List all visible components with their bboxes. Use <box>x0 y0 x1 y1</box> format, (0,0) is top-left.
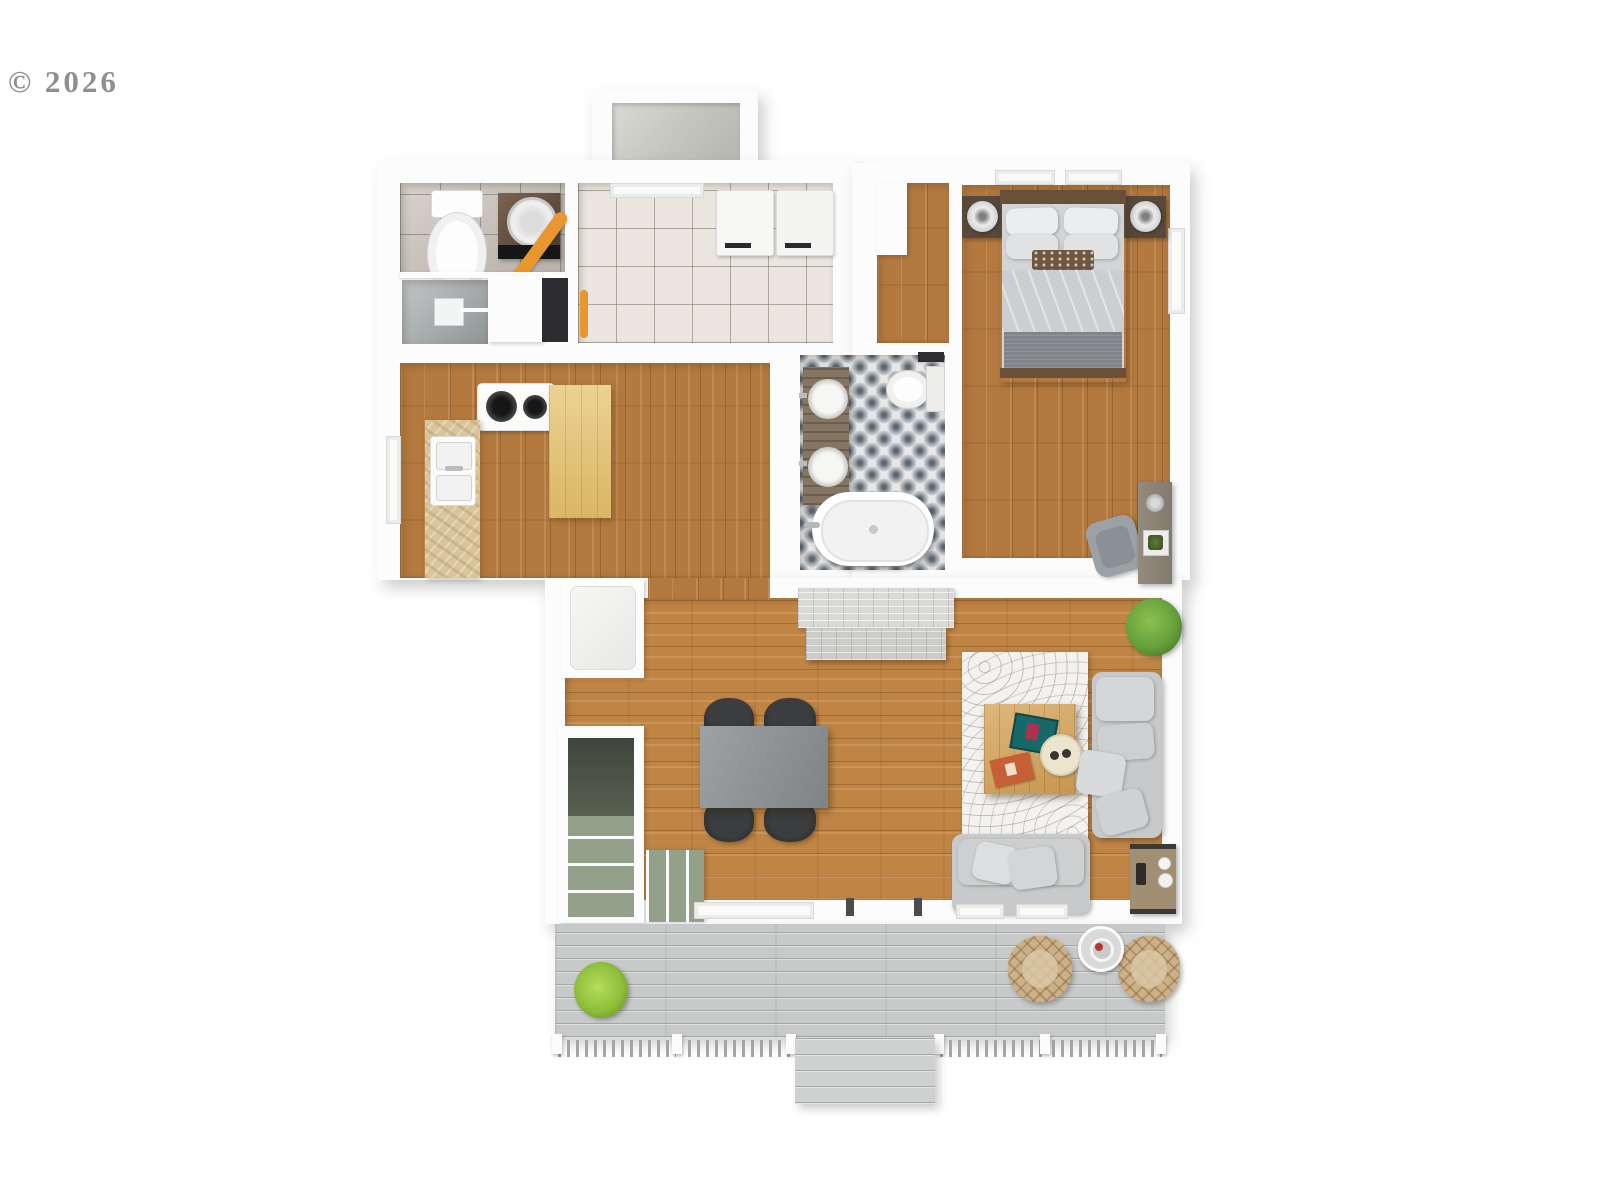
patio-table <box>1078 926 1124 972</box>
toilet <box>425 190 487 294</box>
deck-railing <box>1052 1038 1162 1057</box>
glasses <box>1050 751 1059 760</box>
bedroom-window-top-right <box>1065 170 1122 185</box>
deck-railing <box>688 1038 792 1057</box>
nightstand-left <box>962 196 1002 238</box>
deck-floor <box>555 924 1165 1038</box>
floor-plan-canvas: © 2026 <box>0 0 1600 1200</box>
plant-small <box>1148 535 1163 550</box>
faucet <box>799 393 807 398</box>
shower-arm <box>460 308 488 312</box>
desk <box>1138 482 1172 584</box>
bottle <box>1158 873 1173 888</box>
door-track-mark <box>914 898 922 916</box>
door-track-mark <box>846 898 854 916</box>
island-counter-light-wood <box>549 385 611 518</box>
staircase-enclosure <box>558 726 644 923</box>
potted-plant-living <box>1126 598 1182 656</box>
bedroom-window-top-left <box>995 170 1055 185</box>
remote <box>1136 863 1146 885</box>
round-tray <box>1040 734 1082 776</box>
glasses <box>1062 749 1071 758</box>
railing-post <box>672 1034 682 1054</box>
nightstand-right <box>1124 196 1166 238</box>
sink-faucet <box>445 466 463 471</box>
toilet-tank <box>926 366 945 412</box>
laundry-appliance-right <box>776 190 834 256</box>
bed-footboard <box>1000 368 1126 378</box>
coffee-table <box>984 704 1076 794</box>
toilet-main <box>886 366 944 410</box>
bed-headboard <box>1000 190 1126 204</box>
bed-duvet <box>1002 270 1124 332</box>
patio-tray-ring <box>1090 938 1114 962</box>
sink-basin-bottom <box>436 475 472 501</box>
bathtub-drain <box>869 525 878 534</box>
kitchen-sink <box>430 436 476 506</box>
bed-pillow <box>1064 207 1119 236</box>
book-cover-art <box>1025 723 1040 741</box>
deck-railing <box>558 1038 676 1057</box>
bed <box>1000 190 1126 382</box>
wicker-cushion <box>1022 950 1058 988</box>
faucet <box>799 461 807 466</box>
table-lamp-right <box>1130 201 1161 232</box>
burner-right <box>523 395 547 419</box>
bed-runner <box>1032 250 1094 270</box>
deck-railing <box>940 1038 1044 1057</box>
bedroom-window-right <box>1168 228 1185 314</box>
sofa-chaise-cushion <box>1096 677 1154 721</box>
deck-steps <box>795 1038 935 1104</box>
stove <box>477 383 555 431</box>
bed-blanket <box>1004 332 1122 368</box>
living-window-sill <box>694 902 814 919</box>
kitchen-window-left <box>386 436 401 524</box>
kitchen-living-opening-floor <box>648 578 770 600</box>
laundry-window-recess <box>610 183 704 198</box>
desk-plant-box <box>1143 530 1169 556</box>
living-window-sill <box>1016 904 1068 919</box>
side-table <box>1130 844 1176 914</box>
deck-plant <box>574 962 628 1018</box>
table-lamp-left <box>967 201 998 232</box>
patio-red-item <box>1095 943 1103 951</box>
fireplace-top <box>798 588 954 628</box>
railing-post <box>934 1034 944 1054</box>
book-orange <box>989 752 1034 788</box>
appliance-handle <box>785 243 811 248</box>
fireplace-base <box>806 628 946 660</box>
dining-table <box>700 726 828 808</box>
laundry-yellow-item <box>580 290 588 338</box>
shower-drain <box>434 298 464 326</box>
bed-pillow <box>1006 207 1059 236</box>
bathroom-shelf-dark <box>918 352 944 362</box>
stair-steps <box>568 816 634 920</box>
wicker-chair-right <box>1118 936 1180 1002</box>
hallway-closet <box>877 183 907 255</box>
stair-landing-dark <box>568 738 634 816</box>
bathroom-closet-dark <box>542 278 568 342</box>
copyright-watermark: © 2026 <box>8 64 119 100</box>
throw-pillow <box>1007 845 1058 891</box>
laundry-appliance-left <box>716 190 774 256</box>
living-window-sill <box>956 904 1004 919</box>
bathtub <box>812 492 934 566</box>
burner-left <box>486 391 517 422</box>
shower-wall-bump <box>488 276 542 342</box>
shower-floor <box>402 280 488 344</box>
vanity-double <box>803 367 849 505</box>
toilet-bowl <box>886 370 930 409</box>
railing-post <box>552 1034 562 1054</box>
wicker-cushion <box>1131 950 1167 988</box>
railing-post <box>1040 1034 1050 1054</box>
railing-post <box>1156 1034 1166 1054</box>
vanity-sink <box>808 379 848 419</box>
loveseat <box>952 834 1090 914</box>
book-glyph <box>1005 762 1017 776</box>
bottle <box>1158 857 1171 870</box>
vanity-sink <box>808 447 848 487</box>
entry-closet-floor <box>612 103 740 161</box>
wicker-chair-left <box>1008 936 1072 1002</box>
appliance-handle <box>725 243 751 248</box>
desk-lamp <box>1146 494 1164 512</box>
chair-seat <box>1094 524 1137 570</box>
fridge-alcove <box>562 578 644 678</box>
refrigerator <box>570 586 636 670</box>
bathtub-faucet <box>804 522 820 528</box>
